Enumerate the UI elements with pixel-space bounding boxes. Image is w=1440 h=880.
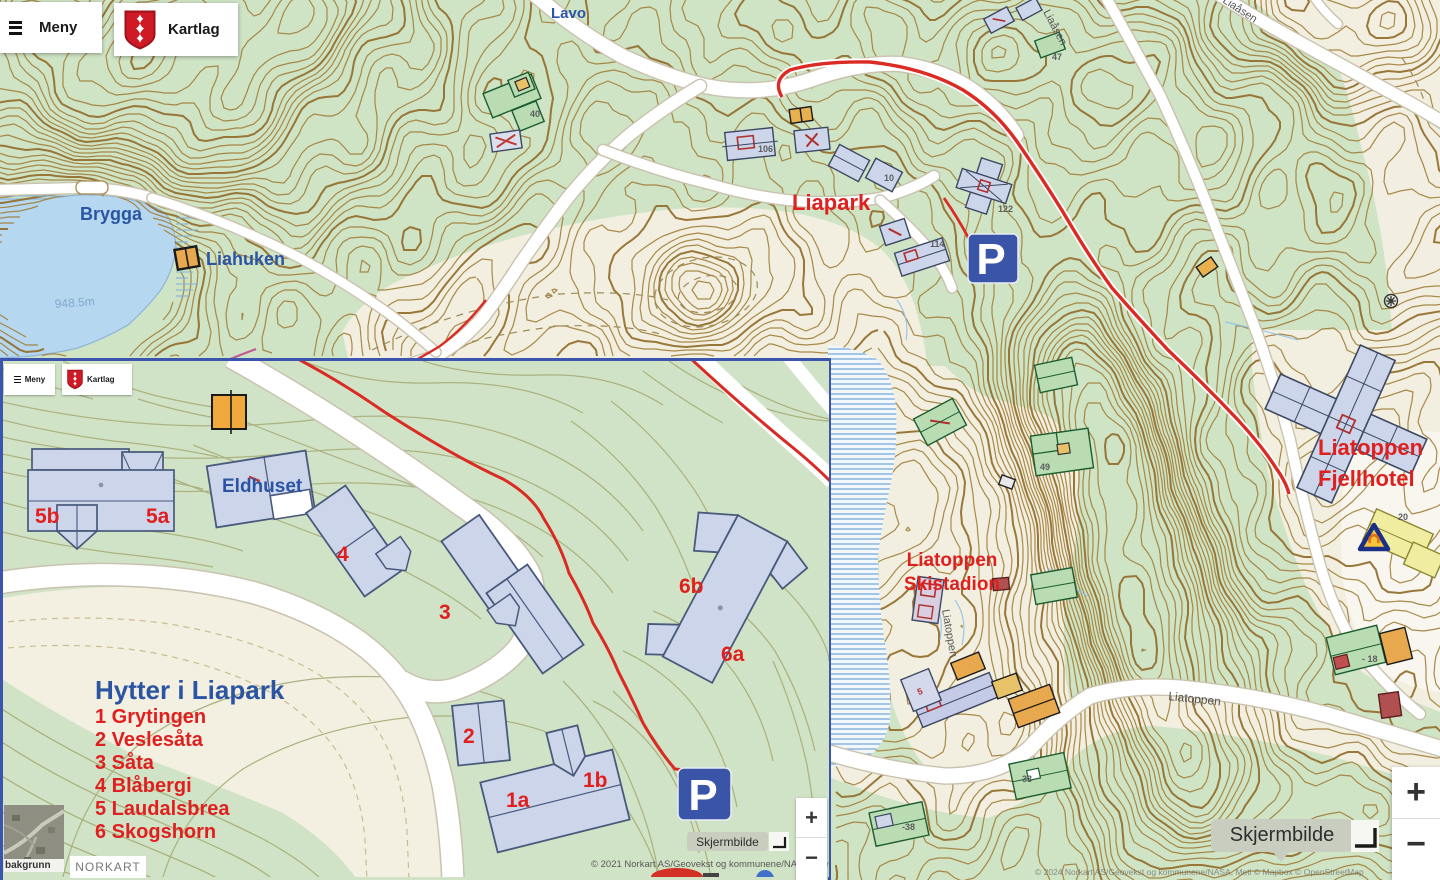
svg-text:Liatoppen: Liatoppen <box>907 550 998 571</box>
svg-text:5a: 5a <box>146 505 170 528</box>
svg-text:3 Såta: 3 Såta <box>95 751 155 774</box>
svg-text:6 Skogshorn: 6 Skogshorn <box>95 821 216 843</box>
svg-text:10: 10 <box>884 173 894 183</box>
svg-text:Fjellhotel: Fjellhotel <box>1318 466 1415 491</box>
svg-text:4 Blåbergi: 4 Blåbergi <box>95 774 192 797</box>
svg-text:20: 20 <box>1398 512 1408 522</box>
svg-text:47: 47 <box>1052 52 1062 62</box>
svg-text:3: 3 <box>439 601 451 624</box>
svg-text:5b: 5b <box>35 505 60 528</box>
svg-text:5 Laudalsbrea: 5 Laudalsbrea <box>95 798 230 820</box>
svg-text:49: 49 <box>1040 462 1050 472</box>
svg-text:6b: 6b <box>679 575 704 598</box>
svg-text:© 2024 Norkart AS/Geovekst og: © 2024 Norkart AS/Geovekst og kommunene/… <box>1035 867 1364 877</box>
svg-text:40: 40 <box>530 109 540 119</box>
svg-text:2: 2 <box>463 725 475 748</box>
svg-text:2 Veslesåta: 2 Veslesåta <box>95 728 204 751</box>
svg-text:© 2021 Norkart AS/Geovekst og: © 2021 Norkart AS/Geovekst og kommunene/… <box>591 859 829 870</box>
svg-text:4: 4 <box>337 543 349 566</box>
svg-text:Liatoppen: Liatoppen <box>1318 435 1423 460</box>
svg-text:P: P <box>688 771 717 820</box>
svg-text:122: 122 <box>998 204 1013 214</box>
svg-text:Skistadion: Skistadion <box>904 574 1000 595</box>
svg-text:1b: 1b <box>583 769 608 792</box>
svg-text:948.5m: 948.5m <box>54 294 95 311</box>
svg-text:1 Grytingen: 1 Grytingen <box>95 706 206 728</box>
svg-text:1a: 1a <box>506 789 530 812</box>
svg-text:6a: 6a <box>721 643 745 666</box>
svg-text:Hytter i Liapark: Hytter i Liapark <box>95 675 285 705</box>
svg-text:-38: -38 <box>902 822 915 832</box>
svg-text:33: 33 <box>1022 774 1032 784</box>
svg-text:Liapark: Liapark <box>792 190 871 215</box>
svg-text:- 18: - 18 <box>1362 654 1378 664</box>
svg-text:P: P <box>976 235 1005 284</box>
svg-text:Eldhuset: Eldhuset <box>222 476 303 497</box>
svg-text:Lavo: Lavo <box>551 5 586 22</box>
svg-text:Liahuken: Liahuken <box>206 249 285 269</box>
svg-text:Brygga: Brygga <box>80 204 143 224</box>
svg-text:114: 114 <box>930 239 945 249</box>
svg-text:106: 106 <box>758 144 773 154</box>
